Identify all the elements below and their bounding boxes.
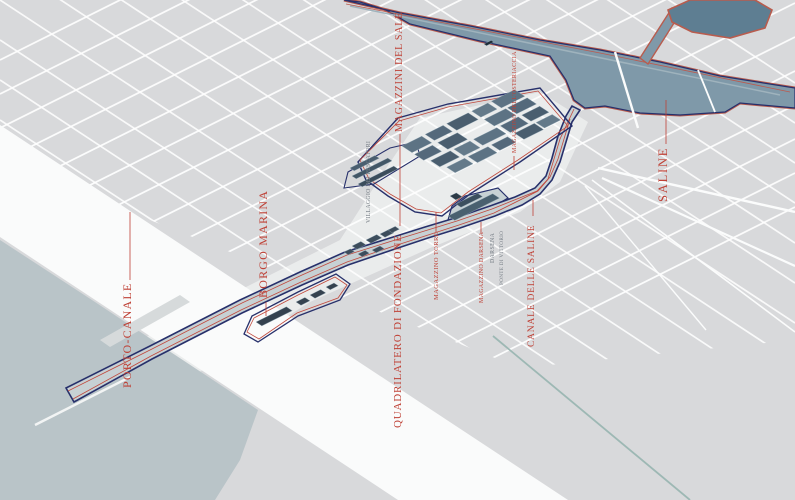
label-borgo-marina: BORGO MARINA [256,190,270,298]
label-quadrilatero-di-fondazione: QUADRILATERO DI FONDAZIONE [392,234,404,428]
label-porto-canale: PORTO-CANALE [120,283,134,388]
map-stage: PORTO-CANALE BORGO MARINA QUADRILATERO D… [0,0,795,500]
label-villaggio-dei-pescatori: VILLAGGIO DEI PESCATORI [366,141,372,223]
axonometric-map: PORTO-CANALE BORGO MARINA QUADRILATERO D… [0,0,795,500]
label-canale-delle-saline: CANALE DELLE SALINE [527,225,537,347]
label-magazzini-del-sale: MAGAZZINI DEL SALE [394,12,405,132]
label-magazzino-darsena: MAGAZZINO DARSENA [479,231,485,303]
label-saline: SALINE [656,147,670,202]
label-magazzino-osteriaccia: MAGAZZINO DELL'OSTERIACCIA [512,51,518,153]
label-magazzino-torre: MAGAZZINO TORRE [433,232,440,300]
label-darsena: DARSENA [490,232,496,263]
label-ponte-di-vittorio: PONTE DI VITTORIO [499,231,505,285]
